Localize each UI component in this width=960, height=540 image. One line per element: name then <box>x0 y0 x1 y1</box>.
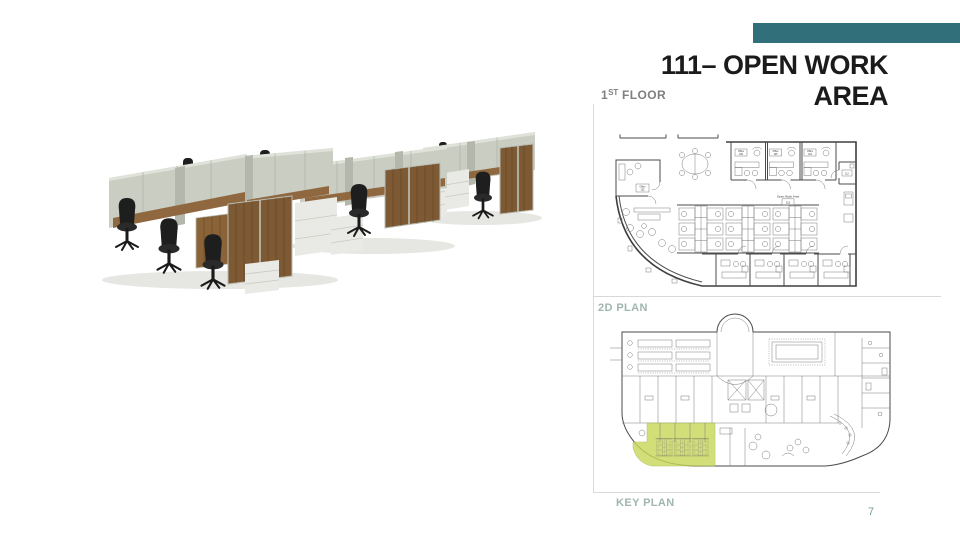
plan-bottom-offices <box>721 260 850 278</box>
office-number: 105 <box>774 154 779 156</box>
office-number: 106 <box>739 154 744 156</box>
caption-key-plan: KEY PLAN <box>616 497 675 509</box>
keyplan-right-wing <box>862 338 890 428</box>
accent-bar <box>753 23 960 43</box>
keyplan-lobby-lounge <box>720 414 855 466</box>
floor-ordinal: ST <box>608 88 618 97</box>
keyplan-conference-room <box>769 339 825 365</box>
frame-left-border <box>593 104 594 493</box>
floor-text: FLOOR <box>618 88 666 102</box>
office-number: 104 <box>808 154 813 156</box>
office-chair <box>157 218 180 273</box>
keyplan-middle-offices <box>640 376 838 423</box>
workstations-photo <box>95 118 540 296</box>
keyplan-training-room <box>628 340 710 373</box>
page-number: 7 <box>860 506 882 518</box>
plan-open-work-area: Open Work Area 111 <box>677 194 819 253</box>
office-label: Office <box>738 151 745 153</box>
frame-divider-top <box>593 296 941 297</box>
floor-label: 1ST FLOOR <box>601 88 666 102</box>
wood-end-panel <box>500 144 533 214</box>
title-line-1: 111– OPEN WORK <box>566 50 888 81</box>
page-title: 111– OPEN WORK AREA <box>566 50 888 112</box>
office-102-number: 102 <box>641 190 646 192</box>
keyplan-highlight <box>633 423 715 466</box>
open-work-area-highlight <box>633 423 715 466</box>
open-area-label: Open Work Area <box>777 194 799 198</box>
floor-plan-2d: Office 102 Office 106 Office 105 Office … <box>598 122 910 294</box>
room-112-number: 112 <box>845 173 849 175</box>
office-label: Office <box>807 151 814 153</box>
plan-walls <box>616 135 856 287</box>
caption-2d-plan: 2D PLAN <box>598 302 648 314</box>
key-plan <box>600 318 906 494</box>
plan-left-office-furniture: Office 102 <box>619 163 649 192</box>
plan-conference-table <box>679 148 710 179</box>
slide: 111– OPEN WORK AREA 1ST FLOOR <box>0 0 960 540</box>
open-area-number: 111 <box>786 200 791 204</box>
office-label: Office <box>773 151 780 153</box>
office-102-name: Office <box>640 187 647 189</box>
